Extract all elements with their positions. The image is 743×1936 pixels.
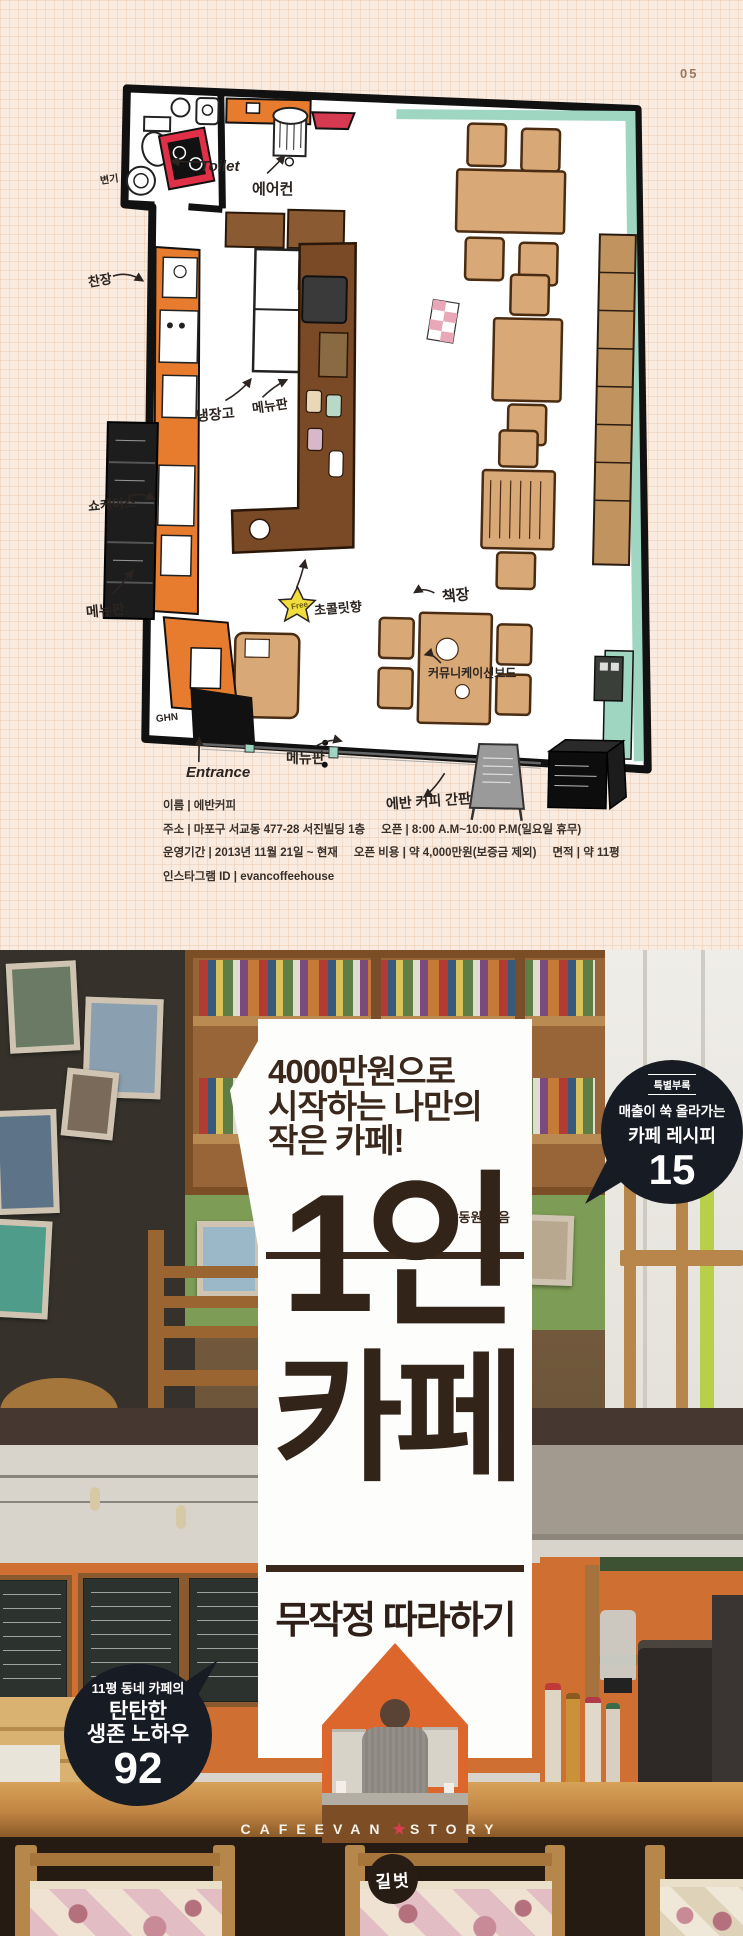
coffee-cup [336, 1781, 346, 1793]
hanging-bulb [176, 1505, 186, 1529]
label-aircon: 에어컨 [252, 178, 293, 199]
picture-frame [0, 1109, 60, 1215]
tagline-line2: 시작하는 나만의 [268, 1090, 482, 1125]
footer-wordmark: CAFEEVAN★STORY [0, 1820, 743, 1838]
cafe-info: 이름 | 에반커피 주소 | 마포구 서교동 477-28 서진빌딩 1층 오픈… [163, 801, 683, 895]
badge-line2: 탄탄한 [109, 1700, 167, 1723]
cover-tagline: 4000만원으로 시작하는 나만의 작은 카페! [268, 1055, 482, 1159]
label-menu-left: 메뉴판 [85, 599, 125, 622]
hanging-bulb [90, 1487, 100, 1511]
badge-line3: 생존 노하우 [87, 1723, 189, 1746]
info-instagram: 인스타그램 ID | evancoffeehouse [163, 872, 334, 884]
green-shelf-band [600, 1557, 743, 1571]
title-block: 4000만원으로 시작하는 나만의 작은 카페! 강동원 지음 1인 카페 무작… [258, 1019, 532, 1758]
menu-boards-left [104, 422, 158, 619]
checkered-cloth [427, 299, 459, 343]
label-comm-board: 커뮤니케이션보드 [428, 664, 516, 681]
coffee-machine [638, 1640, 720, 1790]
supplement-number: 15 [649, 1149, 696, 1191]
supplement-bubble: 특별부록 매출이 쑥 올라가는 카페 레시피 15 [601, 1060, 743, 1204]
blender-base [604, 1678, 632, 1693]
syrup-bottle [566, 1693, 580, 1785]
floral-cushion [30, 1881, 222, 1936]
title-line1: 1인 [258, 1169, 532, 1337]
floorplan-page: 05 [0, 0, 743, 950]
label-toilet-item: 변기 [99, 170, 119, 187]
coffee-cup [444, 1783, 454, 1793]
label-bookshelf: 책장 [441, 583, 471, 607]
label-fridge: 냉장고 [195, 403, 235, 426]
info-name: 이름 | 에반커피 [163, 801, 236, 813]
info-cost: 오픈 비용 | 약 4,000만원(보증금 제외) [354, 848, 537, 860]
cafe-signboard [548, 739, 627, 809]
syrup-bottle [585, 1697, 601, 1785]
coffee-grinder [712, 1595, 743, 1790]
picture-frame [0, 1218, 53, 1319]
chair-right-post [624, 1164, 636, 1434]
supplement-line1: 매출이 쑥 올라가는 [619, 1100, 726, 1120]
chair-right-seat [620, 1250, 743, 1266]
illustrator-signature: GHN [155, 712, 178, 725]
label-menu-bottom: 메뉴판 [286, 748, 325, 768]
tagline-line3: 작은 카페! [268, 1124, 482, 1159]
divider-rule-bottom [266, 1565, 524, 1572]
syrup-bottle [606, 1703, 620, 1785]
info-period: 운영기간 | 2013년 11월 21일 ~ 현재 [163, 848, 338, 860]
info-address: 주소 | 마포구 서교동 477-28 서진빌딩 1층 [163, 825, 365, 837]
house-cutout [322, 1643, 468, 1843]
label-toilet: Toilet [200, 158, 239, 175]
picture-frame [6, 960, 81, 1054]
book-cover: 4000만원으로 시작하는 나만의 작은 카페! 강동원 지음 1인 카페 무작… [0, 950, 743, 1936]
subtitle: 무작정 따라하기 [258, 1589, 532, 1644]
info-open: 오픈 | 8:00 A.M~10:00 P.M(일요일 휴무) [381, 825, 581, 837]
info-area: 면적 | 약 11평 [552, 848, 619, 860]
star-icon: ★ [393, 1821, 406, 1838]
chair-rail [30, 1853, 220, 1866]
supplement-line2: 카페 레시피 [628, 1122, 716, 1148]
book-row [199, 960, 595, 1016]
tagline-line1: 4000만원으로 [268, 1055, 482, 1090]
label-entrance: Entrance [186, 764, 250, 781]
footer-cafeevan: CAFEEVAN [241, 1821, 389, 1837]
badge-line1: 11평 동네 카페의 [92, 1678, 185, 1697]
knowhow-badge: 11평 동네 카페의 탄탄한 생존 노하우 92 [64, 1664, 212, 1806]
blender [600, 1610, 636, 1680]
steel-counter [322, 1793, 468, 1805]
title-line2: 카페 [258, 1349, 532, 1491]
syrup-bottle [545, 1683, 561, 1786]
barista-head [380, 1699, 410, 1729]
picture-frame [61, 1067, 120, 1140]
supplement-tag: 특별부록 [648, 1074, 697, 1095]
floral-cushion [660, 1879, 743, 1936]
footer-story: STORY [410, 1821, 502, 1837]
menu-chalkboard [0, 1575, 72, 1705]
badge-number: 92 [114, 1746, 163, 1792]
